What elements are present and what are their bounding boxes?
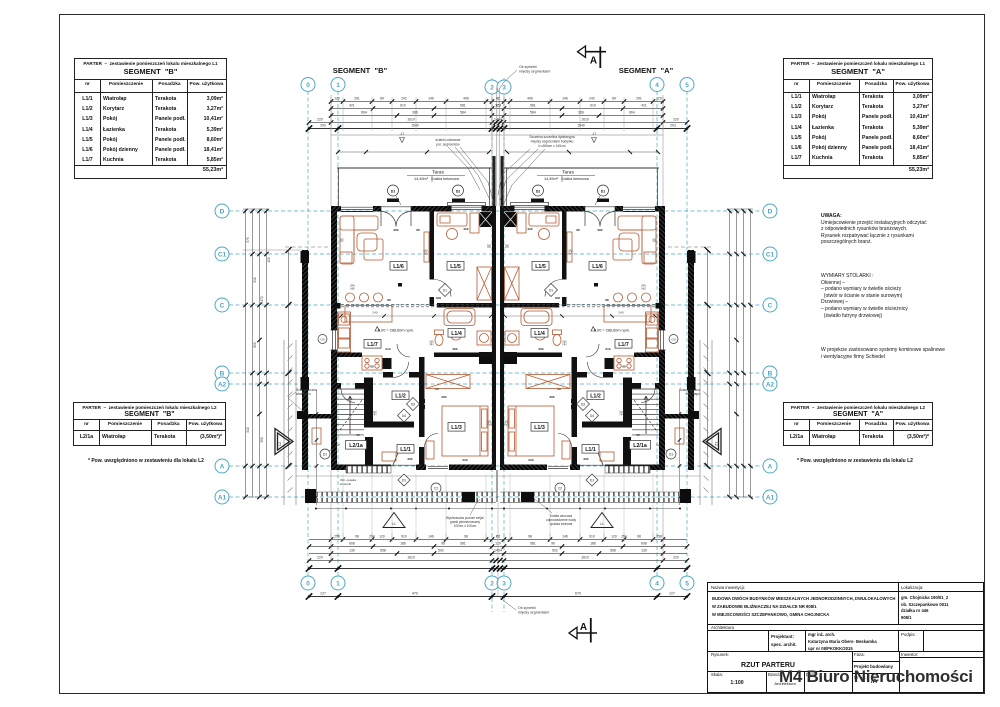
svg-text:293: 293 (670, 124, 676, 128)
svg-text:między segmentami: między segmentami (519, 70, 550, 74)
svg-text:D1: D1 (402, 479, 406, 483)
svg-text:D1: D1 (590, 479, 594, 483)
svg-text:502: 502 (438, 549, 444, 553)
svg-text:96: 96 (551, 542, 555, 546)
svg-text:100cm x 100cm: 100cm x 100cm (454, 524, 477, 528)
svg-text:242: 242 (401, 97, 407, 101)
svg-text:5: 5 (685, 82, 689, 89)
svg-text:D3: D3 (411, 403, 415, 407)
svg-text:L1: L1 (392, 522, 396, 526)
svg-text:291: 291 (636, 97, 642, 101)
svg-text:2: 2 (490, 84, 494, 91)
svg-text:293: 293 (320, 124, 326, 128)
svg-text:L2/1a: L2/1a (633, 443, 647, 449)
svg-text:L1/7: L1/7 (618, 342, 629, 348)
svg-text:1610: 1610 (581, 118, 589, 122)
svg-text:0: 0 (306, 82, 310, 89)
svg-text:120: 120 (379, 535, 385, 539)
svg-text:98: 98 (528, 535, 532, 539)
svg-text:581: 581 (530, 542, 536, 546)
svg-text:1540: 1540 (577, 124, 585, 128)
svg-text:130: 130 (349, 549, 355, 553)
svg-text:1: 1 (336, 580, 340, 587)
svg-text:D3: D3 (581, 403, 585, 407)
svg-text:Taras: Taras (432, 170, 444, 176)
svg-text:664: 664 (629, 111, 635, 115)
svg-text:2: 2 (490, 580, 494, 587)
svg-text:610: 610 (400, 104, 406, 108)
svg-text:wiatrołapu: wiatrołapu (685, 392, 700, 396)
svg-text:3: 3 (502, 84, 506, 91)
svg-text:350: 350 (260, 437, 264, 443)
svg-text:D1: D1 (549, 289, 553, 293)
svg-text:L1/2: L1/2 (395, 394, 406, 400)
svg-text:406: 406 (527, 97, 533, 101)
svg-text:910: 910 (401, 535, 407, 539)
svg-text:C1: C1 (766, 251, 775, 258)
svg-text:L1/7: L1/7 (367, 342, 378, 348)
svg-text:A: A (220, 463, 225, 470)
svg-text:120: 120 (611, 535, 617, 539)
svg-text:220: 220 (317, 118, 323, 122)
svg-text:D2: D2 (536, 189, 541, 193)
svg-text:L1/6: L1/6 (592, 264, 603, 270)
svg-text:B: B (768, 370, 773, 377)
svg-text:B: B (220, 370, 225, 377)
svg-text:D1: D1 (601, 189, 606, 193)
svg-text:127: 127 (320, 591, 326, 595)
svg-text:A: A (580, 622, 587, 633)
svg-text:D1: D1 (669, 453, 673, 457)
svg-text:wiatrołapu: wiatrołapu (296, 392, 311, 396)
svg-text:608: 608 (349, 542, 355, 546)
svg-text:98: 98 (464, 535, 468, 539)
svg-text:584: 584 (460, 111, 466, 115)
svg-text:-17: -17 (592, 132, 597, 136)
svg-text:D: D (768, 208, 773, 215)
svg-text:A: A (768, 463, 773, 470)
svg-text:240: 240 (372, 311, 377, 315)
svg-text:220: 220 (673, 118, 679, 122)
svg-text:A1: A1 (766, 494, 775, 501)
svg-text:h=460cm x 140cm: h=460cm x 140cm (538, 144, 565, 148)
svg-text:między segmentami: między segmentami (518, 611, 549, 615)
svg-text:581: 581 (530, 104, 536, 108)
svg-text:L1/2: L1/2 (590, 394, 601, 400)
svg-text:1610: 1610 (407, 556, 415, 560)
svg-text:A2: A2 (218, 381, 227, 388)
svg-text:291: 291 (354, 97, 360, 101)
svg-text:910: 910 (246, 427, 250, 433)
svg-text:575: 575 (246, 237, 250, 243)
svg-text:658: 658 (610, 549, 616, 553)
svg-text:14,49m²: 14,49m² (544, 177, 559, 181)
svg-text:L1/3: L1/3 (534, 425, 545, 431)
svg-text:Kostka betonowa: Kostka betonowa (561, 177, 589, 181)
svg-text:608: 608 (641, 542, 647, 546)
svg-text:98: 98 (355, 535, 359, 539)
svg-text:D: D (220, 208, 225, 215)
svg-text:L2: L2 (278, 442, 282, 446)
svg-text:1540: 1540 (411, 124, 419, 128)
svg-text:Taras: Taras (562, 170, 574, 176)
svg-text:A: A (590, 56, 597, 67)
svg-text:910: 910 (589, 535, 595, 539)
svg-text:89: 89 (380, 97, 384, 101)
svg-text:470: 470 (412, 591, 418, 595)
svg-text:4: 4 (655, 82, 659, 89)
svg-text:5: 5 (685, 580, 689, 587)
svg-text:Szczelna szczelina dylatacyjna: Szczelna szczelina dylatacyjna (529, 135, 574, 139)
svg-text:D4: D4 (402, 414, 406, 418)
svg-text:ścianki osłonowe: ścianki osłonowe (436, 138, 461, 142)
svg-text:120: 120 (334, 97, 340, 101)
svg-text:L1/3: L1/3 (451, 425, 462, 431)
svg-text:C: C (220, 302, 225, 309)
svg-text:421: 421 (349, 104, 355, 108)
svg-text:C1: C1 (218, 251, 227, 258)
svg-text:366: 366 (412, 111, 418, 115)
svg-text:D1: D1 (443, 289, 447, 293)
svg-text:690: 690 (253, 342, 257, 348)
svg-text:120: 120 (656, 97, 662, 101)
svg-text:510: 510 (253, 277, 257, 283)
svg-text:0: 0 (306, 580, 310, 587)
svg-text:610: 610 (590, 104, 596, 108)
svg-text:581: 581 (460, 104, 466, 108)
svg-text:186: 186 (590, 542, 596, 546)
svg-text:502: 502 (552, 549, 558, 553)
svg-text:96: 96 (441, 542, 445, 546)
svg-text:242: 242 (589, 97, 595, 101)
svg-text:Oś symetrii: Oś symetrii (518, 606, 536, 610)
svg-text:220: 220 (317, 556, 323, 560)
svg-text:opaska żwirowa: opaska żwirowa (550, 522, 573, 526)
svg-text:658: 658 (380, 549, 386, 553)
svg-text:D4: D4 (590, 414, 594, 418)
svg-text:258: 258 (656, 535, 662, 539)
svg-text:258: 258 (334, 535, 340, 539)
svg-text:186: 186 (400, 542, 406, 546)
svg-text:146: 146 (562, 97, 568, 101)
svg-text:120: 120 (267, 257, 271, 263)
svg-text:406: 406 (463, 97, 469, 101)
svg-text:98: 98 (637, 535, 641, 539)
svg-text:-17: -17 (400, 132, 405, 136)
svg-text:O3: O3 (671, 338, 675, 342)
svg-text:A2: A2 (766, 381, 775, 388)
svg-text:146: 146 (428, 535, 434, 539)
svg-text:89: 89 (612, 97, 616, 101)
svg-text:L1/1: L1/1 (585, 447, 596, 453)
svg-text:1610: 1610 (407, 118, 415, 122)
svg-text:SEGMENT "A": SEGMENT "A" (619, 66, 674, 75)
svg-text:Kostka betonowa: Kostka betonowa (431, 177, 459, 181)
svg-text:366: 366 (578, 111, 584, 115)
svg-text:421: 421 (641, 104, 647, 108)
svg-text:L1/5: L1/5 (450, 264, 461, 270)
svg-text:127: 127 (669, 591, 675, 595)
svg-text:D2: D2 (456, 189, 461, 193)
svg-text:664: 664 (361, 111, 367, 115)
svg-text:3: 3 (502, 580, 506, 587)
svg-text:4: 4 (655, 580, 659, 587)
svg-text:Oś symetrii: Oś symetrii (519, 65, 537, 69)
svg-text:L1/4: L1/4 (451, 331, 462, 337)
svg-text:por. segmentów: por. segmentów (436, 143, 460, 147)
svg-text:L1: L1 (600, 522, 604, 526)
svg-text:między segmentami budynku: między segmentami budynku (531, 140, 574, 144)
svg-text:120: 120 (495, 104, 501, 108)
svg-text:D1: D1 (323, 453, 327, 457)
svg-text:1610: 1610 (581, 556, 589, 560)
svg-text:L2: L2 (714, 442, 718, 446)
svg-text:1: 1 (336, 82, 340, 89)
svg-text:śmietnik: śmietnik (340, 482, 352, 486)
svg-text:220: 220 (673, 556, 679, 560)
svg-text:14,49m²: 14,49m² (414, 177, 429, 181)
svg-text:670: 670 (575, 591, 581, 595)
svg-text:C2: C2 (558, 487, 562, 491)
svg-text:SEGMENT "B": SEGMENT "B" (333, 66, 388, 75)
svg-text:2170: 2170 (260, 296, 264, 303)
svg-text:146: 146 (428, 97, 434, 101)
svg-text:584: 584 (530, 111, 536, 115)
svg-text:240: 240 (618, 311, 623, 315)
svg-text:0,00 = 286,60m npm.: 0,00 = 286,60m npm. (594, 329, 630, 333)
svg-text:146: 146 (562, 535, 568, 539)
svg-text:D1: D1 (391, 189, 396, 193)
svg-text:L2/1a: L2/1a (349, 443, 363, 449)
svg-text:L1/1: L1/1 (400, 447, 411, 453)
svg-text:581: 581 (460, 542, 466, 546)
svg-text:L1/5: L1/5 (535, 264, 546, 270)
svg-text:L1/4: L1/4 (534, 331, 545, 337)
svg-text:C: C (768, 302, 773, 309)
svg-text:C2: C2 (434, 487, 438, 491)
svg-text:0,00 = 286,60m npm.: 0,00 = 286,60m npm. (378, 329, 414, 333)
svg-text:L1/6: L1/6 (393, 264, 404, 270)
svg-text:130: 130 (641, 549, 647, 553)
svg-text:A1: A1 (218, 494, 227, 501)
svg-text:O3: O3 (320, 338, 324, 342)
